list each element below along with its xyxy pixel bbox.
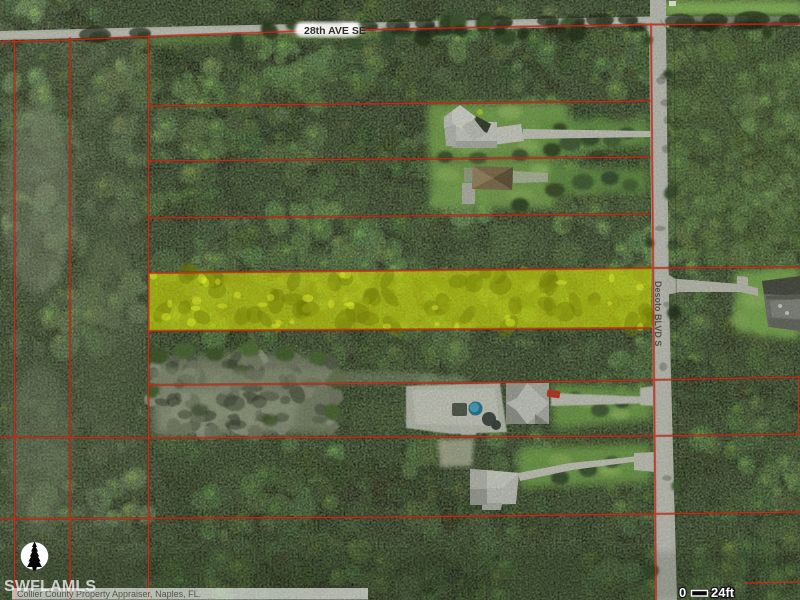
svg-text:Desoto BLVD S: Desoto BLVD S (653, 281, 663, 346)
svg-text:SWFLAMLS: SWFLAMLS (4, 578, 96, 595)
svg-text:24ft: 24ft (711, 585, 735, 600)
svg-text:0: 0 (679, 585, 686, 600)
svg-text:28th AVE SE: 28th AVE SE (304, 25, 366, 37)
